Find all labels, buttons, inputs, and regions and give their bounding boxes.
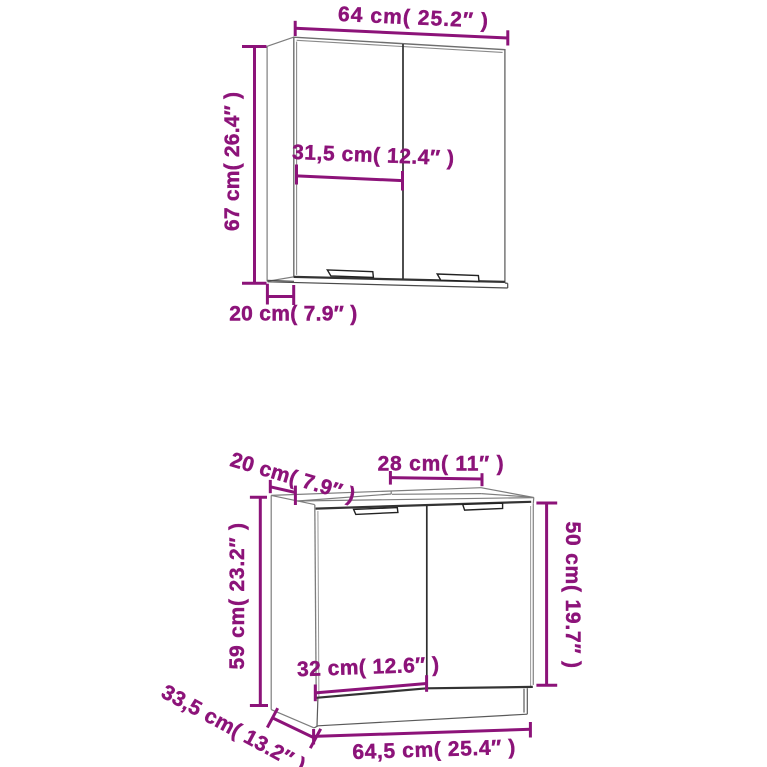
svg-text:28 cm( 11″ ): 28 cm( 11″ ) [378, 452, 504, 475]
svg-text:50 cm( 19.7″ ): 50 cm( 19.7″ ) [561, 522, 584, 669]
svg-text:67 cm( 26.4″ ): 67 cm( 26.4″ ) [221, 92, 244, 231]
svg-text:20 cm( 7.9″ ): 20 cm( 7.9″ ) [229, 302, 357, 325]
svg-text:59 cm( 23.2″ ): 59 cm( 23.2″ ) [226, 523, 249, 670]
